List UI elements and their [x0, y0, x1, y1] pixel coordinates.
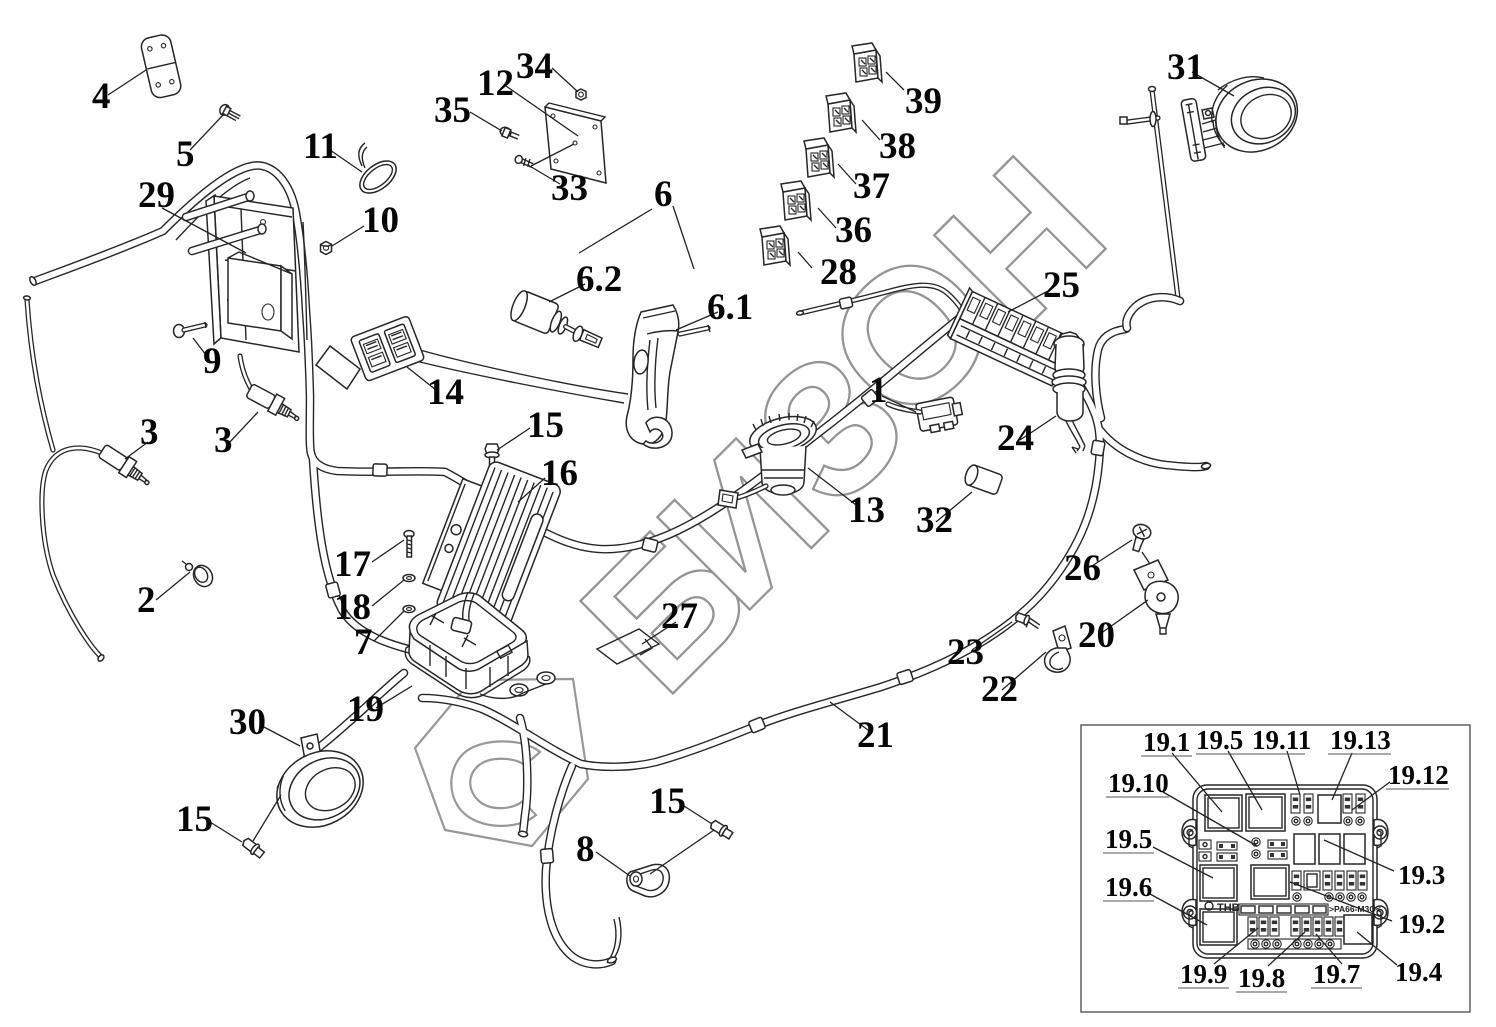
svg-text:10: 10	[362, 200, 399, 241]
svg-text:19.9: 19.9	[1180, 959, 1227, 989]
svg-text:19.8: 19.8	[1238, 963, 1285, 993]
svg-text:34: 34	[516, 46, 553, 87]
svg-text:6: 6	[654, 174, 673, 215]
svg-text:3: 3	[140, 412, 159, 453]
svg-text:19.1: 19.1	[1143, 727, 1190, 757]
svg-text:8: 8	[576, 829, 595, 870]
svg-text:12: 12	[477, 63, 514, 104]
svg-text:19.4: 19.4	[1395, 957, 1442, 987]
svg-text:6.1: 6.1	[707, 287, 753, 328]
svg-text:19.2: 19.2	[1398, 909, 1445, 939]
svg-text:30: 30	[229, 702, 266, 743]
svg-text:38: 38	[879, 126, 916, 167]
svg-text:19.10: 19.10	[1108, 768, 1169, 798]
svg-text:19.13: 19.13	[1330, 725, 1391, 755]
svg-text:29: 29	[138, 175, 175, 216]
svg-text:19.6: 19.6	[1105, 872, 1152, 902]
svg-text:6.2: 6.2	[576, 259, 622, 300]
svg-text:THB: THB	[1217, 902, 1240, 914]
svg-text:28: 28	[820, 252, 857, 293]
svg-text:3: 3	[214, 420, 233, 461]
svg-text:1: 1	[869, 370, 888, 411]
svg-text:11: 11	[303, 126, 338, 167]
svg-text:23: 23	[947, 632, 984, 673]
svg-text:26: 26	[1064, 548, 1101, 589]
svg-text:37: 37	[853, 166, 890, 207]
svg-text:15: 15	[176, 799, 213, 840]
svg-text:21: 21	[857, 715, 894, 756]
svg-text:39: 39	[905, 81, 942, 122]
svg-text:>PA66-M3O<: >PA66-M3O<	[1329, 904, 1381, 914]
svg-text:22: 22	[981, 669, 1018, 710]
svg-text:5: 5	[176, 134, 195, 175]
svg-text:19.11: 19.11	[1252, 725, 1311, 755]
svg-text:32: 32	[916, 500, 953, 541]
svg-text:4: 4	[92, 76, 111, 117]
svg-text:25: 25	[1043, 265, 1080, 306]
svg-text:24: 24	[997, 418, 1034, 459]
svg-text:14: 14	[427, 372, 464, 413]
svg-text:7: 7	[354, 622, 373, 663]
svg-text:9: 9	[203, 341, 222, 382]
svg-text:15: 15	[649, 781, 686, 822]
svg-text:15: 15	[527, 405, 564, 446]
svg-text:19.12: 19.12	[1388, 760, 1449, 790]
svg-text:20: 20	[1078, 615, 1115, 656]
svg-text:16: 16	[541, 453, 578, 494]
svg-text:19: 19	[347, 689, 384, 730]
svg-text:2: 2	[137, 580, 156, 621]
svg-text:13: 13	[848, 490, 885, 531]
svg-text:19.5: 19.5	[1196, 725, 1243, 755]
svg-text:17: 17	[334, 544, 371, 585]
svg-text:19.5: 19.5	[1105, 824, 1152, 854]
svg-text:27: 27	[661, 596, 698, 637]
svg-text:31: 31	[1167, 47, 1204, 88]
svg-text:35: 35	[434, 90, 471, 131]
svg-text:36: 36	[835, 210, 872, 251]
svg-text:33: 33	[551, 168, 588, 209]
svg-text:19.7: 19.7	[1313, 959, 1360, 989]
svg-text:19.3: 19.3	[1398, 860, 1445, 890]
